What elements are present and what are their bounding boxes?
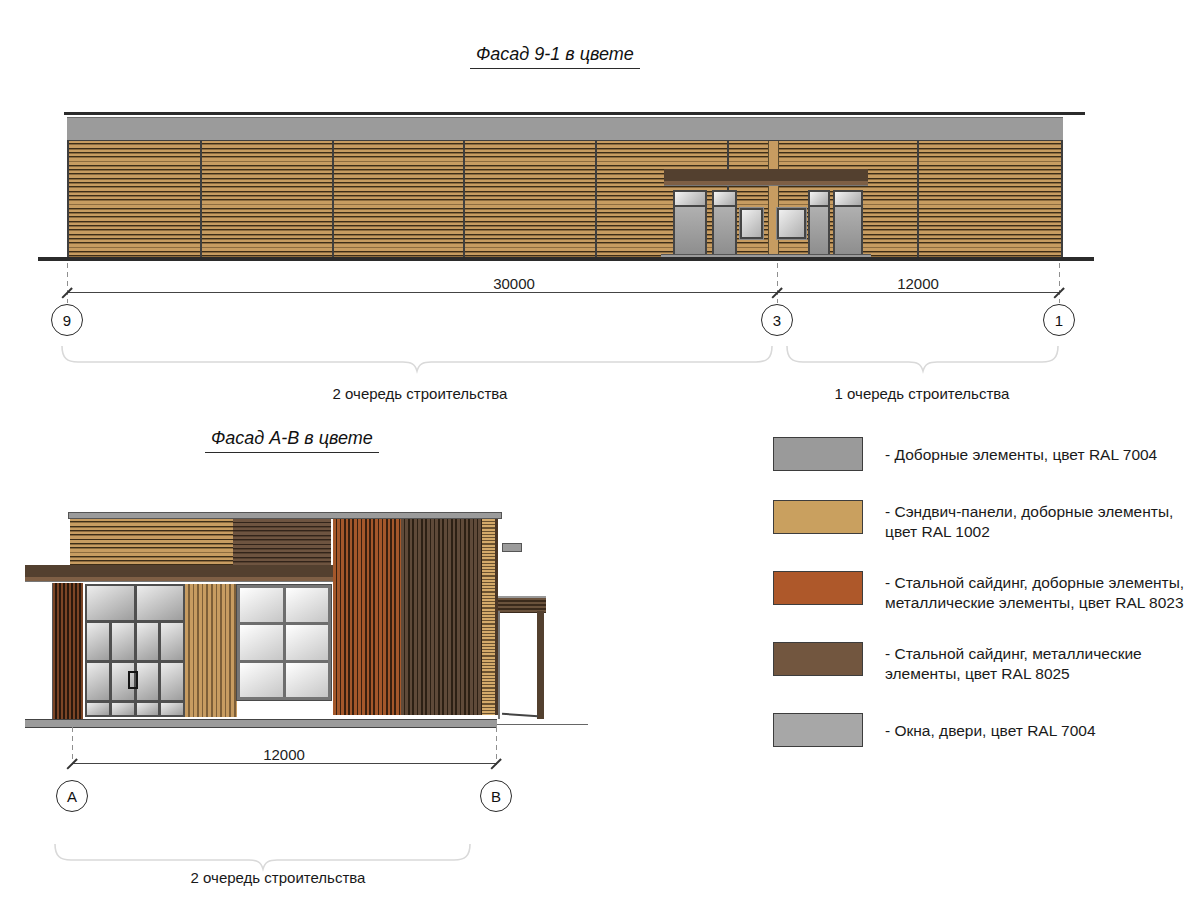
phase2-label: 2 очередь строительства bbox=[178, 869, 378, 886]
entrance-door bbox=[808, 190, 830, 257]
glass-pane bbox=[161, 623, 183, 660]
sandwich-panel-siding bbox=[67, 141, 1063, 258]
glass-pane bbox=[112, 703, 134, 715]
axis-marker-a: А bbox=[56, 780, 88, 812]
door-transom bbox=[810, 192, 828, 205]
axis-extension-line bbox=[1059, 263, 1060, 303]
dimension-line bbox=[67, 292, 1059, 293]
glass-pane bbox=[240, 663, 283, 697]
legend-label: - Стальной сайдинг, доборные элементы, м… bbox=[885, 571, 1198, 613]
door-transom bbox=[835, 192, 861, 205]
panel-joint bbox=[595, 141, 597, 258]
legend-swatch-ral7004 bbox=[773, 437, 863, 471]
phase2-brace bbox=[62, 346, 772, 372]
axis-marker-b: В bbox=[480, 780, 512, 812]
ground-line-right bbox=[497, 724, 588, 725]
door-leaf bbox=[714, 207, 735, 255]
panel-joint bbox=[332, 141, 334, 258]
wall-bracket bbox=[502, 543, 522, 552]
dimension-value-30000: 30000 bbox=[474, 275, 554, 292]
axis-marker-3: 3 bbox=[761, 304, 793, 336]
roof-edge bbox=[64, 112, 1085, 115]
door-transom bbox=[714, 192, 735, 205]
canopy-edge bbox=[25, 577, 333, 582]
door-leaf bbox=[835, 207, 861, 255]
glass-pane bbox=[240, 588, 283, 622]
side-canopy-post-thin bbox=[498, 611, 500, 719]
roof-trim-ral7004 bbox=[68, 512, 502, 519]
door-leaf bbox=[675, 207, 705, 255]
glass-pane bbox=[137, 663, 159, 700]
glass-pane bbox=[87, 623, 109, 660]
entrance-canopy bbox=[664, 169, 868, 186]
phase1-label: 1 очередь строительства bbox=[822, 385, 1022, 402]
axis-extension-line bbox=[777, 263, 778, 303]
legend-item: - Сэндвич-панели, доборные элементы, цве… bbox=[773, 500, 1198, 542]
glass-pane bbox=[137, 703, 159, 715]
legend-swatch-ral8023 bbox=[773, 571, 863, 605]
glass-pane bbox=[161, 703, 183, 715]
glass-pane bbox=[240, 625, 283, 659]
door-transom bbox=[675, 192, 705, 205]
side-canopy-post bbox=[537, 611, 544, 719]
canopy-fascia bbox=[25, 565, 333, 577]
panel-joint bbox=[200, 141, 202, 258]
phase-boundary-strip bbox=[768, 141, 779, 258]
ground-line bbox=[38, 257, 1094, 261]
plinth-base bbox=[25, 719, 497, 728]
entrance-canopy bbox=[25, 565, 333, 582]
phase2-brace bbox=[55, 844, 470, 870]
legend-swatch-ral8025 bbox=[773, 642, 863, 676]
legend-item: - Доборные элементы, цвет RAL 7004 bbox=[773, 437, 1198, 471]
color-legend: - Доборные элементы, цвет RAL 7004 - Сэн… bbox=[773, 437, 1198, 776]
glass-pane bbox=[137, 623, 159, 660]
legend-swatch-ral1002 bbox=[773, 500, 863, 534]
small-window bbox=[740, 208, 763, 239]
dimension-line bbox=[72, 763, 496, 764]
legend-item: - Стальной сайдинг, доборные элементы, м… bbox=[773, 571, 1198, 613]
axis-marker-1: 1 bbox=[1043, 304, 1075, 336]
entrance-column bbox=[53, 583, 83, 719]
door-handle bbox=[128, 671, 138, 689]
phase1-brace bbox=[787, 346, 1058, 372]
legend-item: - Окна, двери, цвет RAL 7004 bbox=[773, 713, 1198, 747]
axis-extension-line bbox=[67, 263, 68, 303]
glass-pane bbox=[161, 663, 183, 700]
glass-pane bbox=[137, 586, 184, 620]
legend-swatch-windows-ral7004 bbox=[773, 713, 863, 747]
parapet-band-ral7004 bbox=[67, 117, 1063, 142]
legend-label: - Стальной сайдинг, металлические элемен… bbox=[885, 642, 1198, 684]
axis-marker-9: 9 bbox=[51, 304, 83, 336]
dimension-value-12000: 12000 bbox=[244, 746, 324, 763]
canopy-edge bbox=[664, 181, 868, 186]
steel-siding-ral8025 bbox=[401, 519, 482, 715]
axis-extension-line bbox=[72, 727, 73, 765]
facade-9-1-drawing bbox=[67, 112, 1063, 262]
axis-extension-line bbox=[496, 727, 497, 765]
drawing-sheet: Фасад 9-1 в цвете bbox=[0, 0, 1200, 900]
upper-band-tan bbox=[70, 519, 233, 565]
facade-a-b-title: Фасад А-В в цвете bbox=[205, 428, 379, 453]
entrance-door bbox=[833, 190, 863, 257]
phase2-label: 2 очередь строительства bbox=[320, 385, 520, 402]
glazed-entrance-wall bbox=[85, 584, 185, 717]
legend-item: - Стальной сайдинг, металлические элемен… bbox=[773, 642, 1198, 684]
steel-siding-ral8023 bbox=[333, 519, 401, 715]
entrance-door bbox=[673, 190, 707, 257]
legend-label: - Доборные элементы, цвет RAL 7004 bbox=[885, 437, 1198, 465]
corner-trim-tan bbox=[482, 519, 495, 715]
glass-pane bbox=[87, 703, 109, 715]
dimension-value-12000: 12000 bbox=[878, 275, 958, 292]
upper-band-brown bbox=[233, 519, 331, 565]
ramp-line bbox=[502, 713, 538, 718]
glass-pane bbox=[286, 588, 329, 622]
facade-a-b-drawing: 12000 А В 2 очередь строительства bbox=[25, 505, 585, 900]
canopy-fascia bbox=[664, 169, 868, 181]
door-leaf bbox=[810, 207, 828, 255]
large-window bbox=[237, 585, 331, 700]
entrance-door bbox=[712, 190, 737, 257]
legend-label: - Окна, двери, цвет RAL 7004 bbox=[885, 713, 1198, 741]
glass-pane bbox=[112, 623, 134, 660]
glass-pane bbox=[87, 663, 109, 700]
facade-9-1-title: Фасад 9-1 в цвете bbox=[470, 44, 640, 69]
legend-label: - Сэндвич-панели, доборные элементы, цве… bbox=[885, 500, 1198, 542]
panel-joint bbox=[463, 141, 465, 258]
glass-pane bbox=[286, 625, 329, 659]
glass-pane bbox=[87, 586, 134, 620]
small-window bbox=[777, 208, 806, 239]
glass-pane bbox=[286, 663, 329, 697]
tan-siding-strip bbox=[185, 584, 237, 717]
panel-joint bbox=[917, 141, 919, 258]
